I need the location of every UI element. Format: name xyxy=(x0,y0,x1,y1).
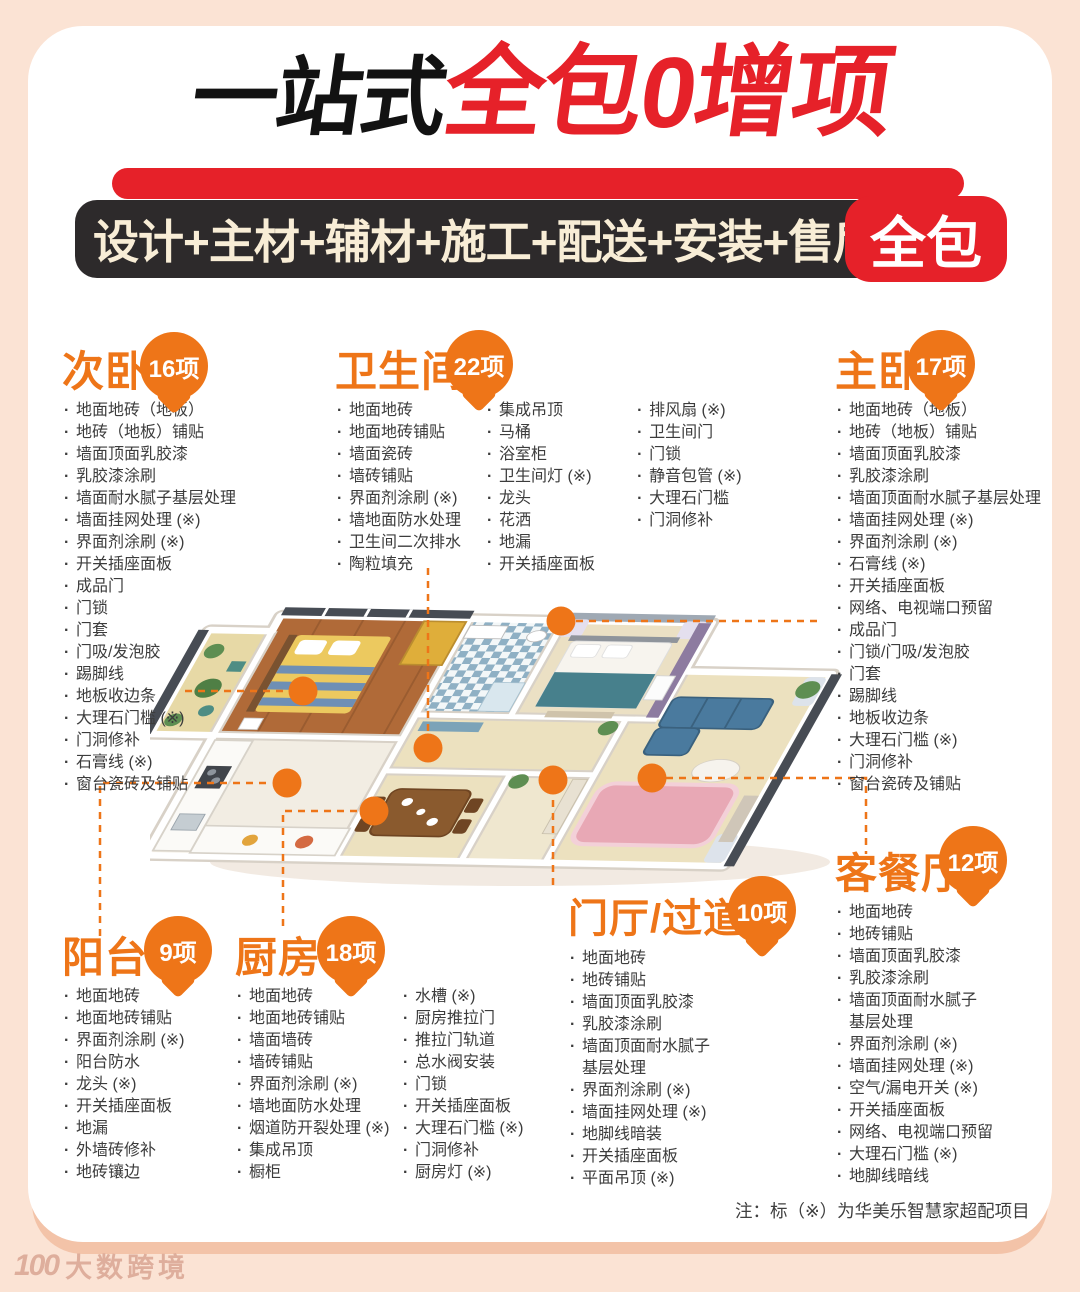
item-count-label: 18项 xyxy=(326,933,377,968)
list-item: 大理石门槛 (※) xyxy=(835,1144,993,1166)
list-item: 门锁 xyxy=(401,1074,565,1096)
title-highlight: 全包0增项 xyxy=(437,37,898,149)
item-columns: 地面地砖地面地砖铺贴墙面墙砖墙砖铺贴界面剂涂刷 (※)墙地面防水处理烟道防开裂处… xyxy=(235,986,565,1184)
list-item: 橱柜 xyxy=(235,1162,395,1184)
list-item: 窗台瓷砖及铺贴 xyxy=(62,774,236,796)
list-item: 地砖（地板）铺贴 xyxy=(835,422,1041,444)
list-item: 开关插座面板 xyxy=(485,554,629,576)
list-item: 开关插座面板 xyxy=(62,1096,185,1118)
list-item: 墙面顶面乳胶漆 xyxy=(835,444,1041,466)
list-item: 墙面顶面耐水腻子 基层处理 xyxy=(835,990,993,1034)
section-master-bedroom: 主卧 17项 地面地砖（地板）地砖（地板）铺贴墙面顶面乳胶漆乳胶漆涂刷墙面顶面耐… xyxy=(835,338,1070,796)
watermark-text: 大数跨境 xyxy=(65,1246,189,1285)
item-list: 集成吊顶马桶浴室柜卫生间灯 (※)龙头花洒地漏开关插座面板 xyxy=(485,400,629,576)
item-columns: 地面地砖地面地砖铺贴界面剂涂刷 (※)阳台防水龙头 (※)开关插座面板地漏外墙砖… xyxy=(62,986,242,1184)
title-block: 一站式全包0增项 xyxy=(0,34,1080,182)
list-item: 乳胶漆涂刷 xyxy=(568,1014,710,1036)
list-item: 大理石门槛 (※) xyxy=(401,1118,565,1140)
list-item: 墙面顶面乳胶漆 xyxy=(835,946,993,968)
list-item: 地面地砖铺贴 xyxy=(62,1008,185,1030)
list-item: 界面剂涂刷 (※) xyxy=(62,532,236,554)
item-list: 地面地砖地面地砖铺贴墙面瓷砖墙砖铺贴界面剂涂刷 (※)墙地面防水处理卫生间二次排… xyxy=(335,400,479,576)
list-item: 成品门 xyxy=(62,576,236,598)
list-item: 门套 xyxy=(835,664,1041,686)
item-list: 地面地砖（地板）地砖（地板）铺贴墙面顶面乳胶漆乳胶漆涂刷墙面顶面耐水腻子基层处理… xyxy=(835,400,1041,796)
item-count-pin: 10项 xyxy=(728,876,796,944)
list-item: 墙面挂网处理 (※) xyxy=(835,1056,993,1078)
item-list: 水槽 (※)厨房推拉门推拉门轨道总水阀安装门锁开关插座面板大理石门槛 (※)门洞… xyxy=(401,986,565,1184)
list-item: 大理石门槛 xyxy=(635,488,785,510)
list-item: 开关插座面板 xyxy=(835,1100,993,1122)
section-secondary-bedroom: 次卧 16项 地面地砖（地板）地砖（地板）铺贴墙面顶面乳胶漆乳胶漆涂刷墙面耐水腻… xyxy=(62,338,307,796)
list-item: 墙面耐水腻子基层处理 xyxy=(62,488,236,510)
list-item: 地砖铺贴 xyxy=(568,970,710,992)
section-title: 卫生间 xyxy=(335,348,464,395)
list-item: 空气/漏电开关 (※) xyxy=(835,1078,993,1100)
section-header: 次卧 16项 xyxy=(62,338,307,390)
list-item: 墙面瓷砖 xyxy=(335,444,479,466)
item-count-label: 10项 xyxy=(737,893,788,928)
list-item: 门锁 xyxy=(62,598,236,620)
list-item: 乳胶漆涂刷 xyxy=(835,968,993,990)
list-item: 水槽 (※) xyxy=(401,986,565,1008)
list-item: 地漏 xyxy=(485,532,629,554)
section-title: 厨房 xyxy=(235,934,321,981)
list-item: 大理石门槛 (※) xyxy=(62,708,236,730)
list-item: 平面吊顶 (※) xyxy=(568,1168,710,1190)
list-item: 外墙砖修补 xyxy=(62,1140,185,1162)
list-item: 排风扇 (※) xyxy=(635,400,785,422)
list-item: 门锁 xyxy=(635,444,785,466)
list-item: 开关插座面板 xyxy=(401,1096,565,1118)
list-item: 网络、电视端口预留 xyxy=(835,598,1041,620)
item-count-label: 9项 xyxy=(159,933,196,968)
list-item: 厨房推拉门 xyxy=(401,1008,565,1030)
list-item: 开关插座面板 xyxy=(568,1146,710,1168)
item-count-label: 22项 xyxy=(454,347,505,382)
list-item: 墙地面防水处理 xyxy=(335,510,479,532)
list-item: 马桶 xyxy=(485,422,629,444)
item-count-pin: 9项 xyxy=(144,916,212,984)
list-item: 石膏线 (※) xyxy=(62,752,236,774)
item-count-pin: 17项 xyxy=(907,330,975,398)
main-title: 一站式全包0增项 xyxy=(181,34,899,182)
list-item: 开关插座面板 xyxy=(835,576,1041,598)
item-list: 地面地砖地砖铺贴墙面顶面乳胶漆乳胶漆涂刷墙面顶面耐水腻子 基层处理界面剂涂刷 (… xyxy=(835,902,993,1188)
item-columns: 地面地砖（地板）地砖（地板）铺贴墙面顶面乳胶漆乳胶漆涂刷墙面顶面耐水腻子基层处理… xyxy=(835,400,1070,796)
item-count-label: 12项 xyxy=(948,843,999,878)
item-columns: 地面地砖地面地砖铺贴墙面瓷砖墙砖铺贴界面剂涂刷 (※)墙地面防水处理卫生间二次排… xyxy=(335,400,785,576)
item-count-label: 17项 xyxy=(916,347,967,382)
list-item: 门洞修补 xyxy=(835,752,1041,774)
section-bathroom: 卫生间 22项 地面地砖地面地砖铺贴墙面瓷砖墙砖铺贴界面剂涂刷 (※)墙地面防水… xyxy=(335,338,785,576)
list-item: 墙面墙砖 xyxy=(235,1030,395,1052)
section-header: 门厅/过道 10项 xyxy=(568,886,790,938)
list-item: 地面地砖铺贴 xyxy=(235,1008,395,1030)
list-item: 门套 xyxy=(62,620,236,642)
list-item: 卫生间二次排水 xyxy=(335,532,479,554)
list-item: 厨房灯 (※) xyxy=(401,1162,565,1184)
list-item: 墙面顶面耐水腻子基层处理 xyxy=(835,488,1041,510)
list-item: 地脚线暗装 xyxy=(568,1124,710,1146)
list-item: 地面地砖（地板） xyxy=(62,400,236,422)
list-item: 烟道防开裂处理 (※) xyxy=(235,1118,395,1140)
list-item: 地砖镶边 xyxy=(62,1162,185,1184)
list-item: 踢脚线 xyxy=(835,686,1041,708)
section-balcony: 阳台 9项 地面地砖地面地砖铺贴界面剂涂刷 (※)阳台防水龙头 (※)开关插座面… xyxy=(62,924,242,1184)
list-item: 地砖（地板）铺贴 xyxy=(62,422,236,444)
services-banner-text: 设计+主材+辅材+施工+配送+安装+售后 xyxy=(93,206,878,272)
item-columns: 地面地砖地砖铺贴墙面顶面乳胶漆乳胶漆涂刷墙面顶面耐水腻子 基层处理界面剂涂刷 (… xyxy=(835,902,1070,1188)
list-item: 集成吊顶 xyxy=(485,400,629,422)
section-title: 门厅/过道 xyxy=(568,897,744,941)
list-item: 龙头 xyxy=(485,488,629,510)
list-item: 卫生间门 xyxy=(635,422,785,444)
item-list: 地面地砖（地板）地砖（地板）铺贴墙面顶面乳胶漆乳胶漆涂刷墙面耐水腻子基层处理墙面… xyxy=(62,400,236,796)
list-item: 界面剂涂刷 (※) xyxy=(62,1030,185,1052)
section-header: 卫生间 22项 xyxy=(335,338,785,390)
section-title: 阳台 xyxy=(62,934,148,981)
watermark: 100 大数跨境 xyxy=(14,1246,189,1285)
list-item: 花洒 xyxy=(485,510,629,532)
section-entry-hallway: 门厅/过道 10项 地面地砖地砖铺贴墙面顶面乳胶漆乳胶漆涂刷墙面顶面耐水腻子 基… xyxy=(568,886,790,1190)
item-count-pin: 16项 xyxy=(140,332,208,400)
item-columns: 地面地砖（地板）地砖（地板）铺贴墙面顶面乳胶漆乳胶漆涂刷墙面耐水腻子基层处理墙面… xyxy=(62,400,307,796)
section-title: 次卧 xyxy=(62,348,148,395)
poster-background: 一站式全包0增项 设计+主材+辅材+施工+配送+安装+售后 全包 xyxy=(0,0,1080,1292)
list-item: 墙砖铺贴 xyxy=(235,1052,395,1074)
list-item: 石膏线 (※) xyxy=(835,554,1041,576)
section-living-dining-room: 客餐厅 12项 地面地砖地砖铺贴墙面顶面乳胶漆乳胶漆涂刷墙面顶面耐水腻子 基层处… xyxy=(835,840,1070,1188)
list-item: 地漏 xyxy=(62,1118,185,1140)
list-item: 地板收边条 xyxy=(835,708,1041,730)
list-item: 大理石门槛 (※) xyxy=(835,730,1041,752)
section-header: 主卧 17项 xyxy=(835,338,1070,390)
section-header: 阳台 9项 xyxy=(62,924,242,976)
list-item: 开关插座面板 xyxy=(62,554,236,576)
list-item: 静音包管 (※) xyxy=(635,466,785,488)
list-item: 界面剂涂刷 (※) xyxy=(568,1080,710,1102)
list-item: 门洞修补 xyxy=(401,1140,565,1162)
list-item: 墙面顶面乳胶漆 xyxy=(568,992,710,1014)
section-header: 客餐厅 12项 xyxy=(835,840,1070,892)
item-columns: 地面地砖地砖铺贴墙面顶面乳胶漆乳胶漆涂刷墙面顶面耐水腻子 基层处理界面剂涂刷 (… xyxy=(568,948,790,1190)
list-item: 窗台瓷砖及铺贴 xyxy=(835,774,1041,796)
list-item: 墙面顶面乳胶漆 xyxy=(62,444,236,466)
footnote: 注：标（※）为华美乐智慧家超配项目 xyxy=(735,1198,1030,1223)
full-package-badge: 全包 xyxy=(845,196,1007,282)
list-item: 墙地面防水处理 xyxy=(235,1096,395,1118)
list-item: 地面地砖铺贴 xyxy=(335,422,479,444)
list-item: 推拉门轨道 xyxy=(401,1030,565,1052)
item-list: 地面地砖地面地砖铺贴墙面墙砖墙砖铺贴界面剂涂刷 (※)墙地面防水处理烟道防开裂处… xyxy=(235,986,395,1184)
list-item: 网络、电视端口预留 xyxy=(835,1122,993,1144)
list-item: 陶粒填充 xyxy=(335,554,479,576)
list-item: 乳胶漆涂刷 xyxy=(62,466,236,488)
item-list: 排风扇 (※)卫生间门门锁静音包管 (※)大理石门槛门洞修补 xyxy=(635,400,785,532)
list-item: 门洞修补 xyxy=(635,510,785,532)
list-item: 墙面顶面耐水腻子 基层处理 xyxy=(568,1036,710,1080)
list-item: 界面剂涂刷 (※) xyxy=(835,1034,993,1056)
list-item: 地面地砖 xyxy=(568,948,710,970)
list-item: 地砖铺贴 xyxy=(835,924,993,946)
list-item: 踢脚线 xyxy=(62,664,236,686)
watermark-logo-icon: 100 xyxy=(14,1249,58,1283)
list-item: 乳胶漆涂刷 xyxy=(835,466,1041,488)
section-header: 厨房 18项 xyxy=(235,924,565,976)
list-item: 地面地砖 xyxy=(62,986,185,1008)
item-list: 地面地砖地砖铺贴墙面顶面乳胶漆乳胶漆涂刷墙面顶面耐水腻子 基层处理界面剂涂刷 (… xyxy=(568,948,710,1190)
list-item: 门锁/门吸/发泡胶 xyxy=(835,642,1041,664)
list-item: 墙砖铺贴 xyxy=(335,466,479,488)
services-banner: 设计+主材+辅材+施工+配送+安装+售后 全包 xyxy=(75,200,1005,278)
list-item: 地面地砖 xyxy=(335,400,479,422)
list-item: 地面地砖 xyxy=(235,986,395,1008)
list-item: 门洞修补 xyxy=(62,730,236,752)
list-item: 墙面挂网处理 (※) xyxy=(835,510,1041,532)
list-item: 总水阀安装 xyxy=(401,1052,565,1074)
list-item: 浴室柜 xyxy=(485,444,629,466)
title-prefix: 一站式 xyxy=(186,50,451,146)
list-item: 门吸/发泡胶 xyxy=(62,642,236,664)
list-item: 阳台防水 xyxy=(62,1052,185,1074)
list-item: 界面剂涂刷 (※) xyxy=(235,1074,395,1096)
item-count-pin: 12项 xyxy=(939,826,1007,894)
item-count-pin: 18项 xyxy=(317,916,385,984)
list-item: 卫生间灯 (※) xyxy=(485,466,629,488)
list-item: 界面剂涂刷 (※) xyxy=(335,488,479,510)
list-item: 集成吊顶 xyxy=(235,1140,395,1162)
section-kitchen: 厨房 18项 地面地砖地面地砖铺贴墙面墙砖墙砖铺贴界面剂涂刷 (※)墙地面防水处… xyxy=(235,924,565,1184)
item-list: 地面地砖地面地砖铺贴界面剂涂刷 (※)阳台防水龙头 (※)开关插座面板地漏外墙砖… xyxy=(62,986,185,1184)
list-item: 墙面挂网处理 (※) xyxy=(568,1102,710,1124)
list-item: 地板收边条 xyxy=(62,686,236,708)
list-item: 界面剂涂刷 (※) xyxy=(835,532,1041,554)
item-count-pin: 22项 xyxy=(445,330,513,398)
list-item: 地脚线暗线 xyxy=(835,1166,993,1188)
list-item: 墙面挂网处理 (※) xyxy=(62,510,236,532)
list-item: 成品门 xyxy=(835,620,1041,642)
list-item: 龙头 (※) xyxy=(62,1074,185,1096)
item-count-label: 16项 xyxy=(149,349,200,384)
